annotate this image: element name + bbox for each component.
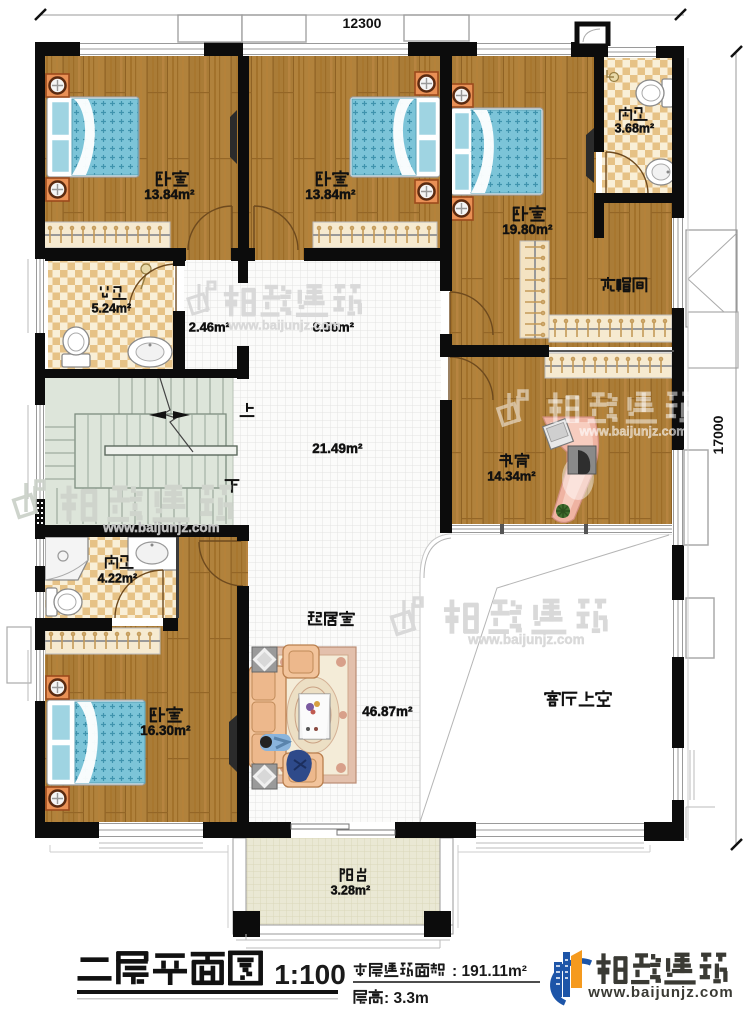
svg-text:16.30m²: 16.30m²	[140, 723, 191, 738]
svg-text:4.22m²: 4.22m²	[98, 572, 138, 586]
svg-text:19.80m²: 19.80m²	[502, 222, 553, 237]
svg-text:5.24m²: 5.24m²	[92, 302, 132, 316]
svg-text:21.49m²: 21.49m²	[312, 441, 363, 456]
svg-text:3.28m²: 3.28m²	[331, 884, 371, 898]
svg-text:www.baijunjz.com: www.baijunjz.com	[579, 425, 688, 439]
svg-text:1:100: 1:100	[274, 959, 346, 990]
svg-text:46.87m²: 46.87m²	[362, 704, 413, 719]
svg-text:: 3.3m: : 3.3m	[384, 990, 429, 1007]
svg-text:17000: 17000	[710, 415, 726, 454]
svg-text:www.baijunjz.com: www.baijunjz.com	[587, 984, 733, 1001]
svg-text:www.baijunjz.com: www.baijunjz.com	[227, 318, 340, 333]
svg-text:2.46m²: 2.46m²	[189, 320, 231, 335]
svg-text:12300: 12300	[343, 15, 382, 31]
svg-text:13.84m²: 13.84m²	[144, 187, 195, 202]
svg-text:13.84m²: 13.84m²	[305, 187, 356, 202]
svg-text:3.68m²: 3.68m²	[615, 122, 655, 136]
svg-text:: 191.11m²: : 191.11m²	[452, 963, 527, 980]
svg-text:14.34m²: 14.34m²	[487, 469, 536, 484]
svg-text:www.baijunjz.com: www.baijunjz.com	[467, 632, 585, 647]
svg-text:www.baijunjz.com: www.baijunjz.com	[102, 520, 220, 535]
